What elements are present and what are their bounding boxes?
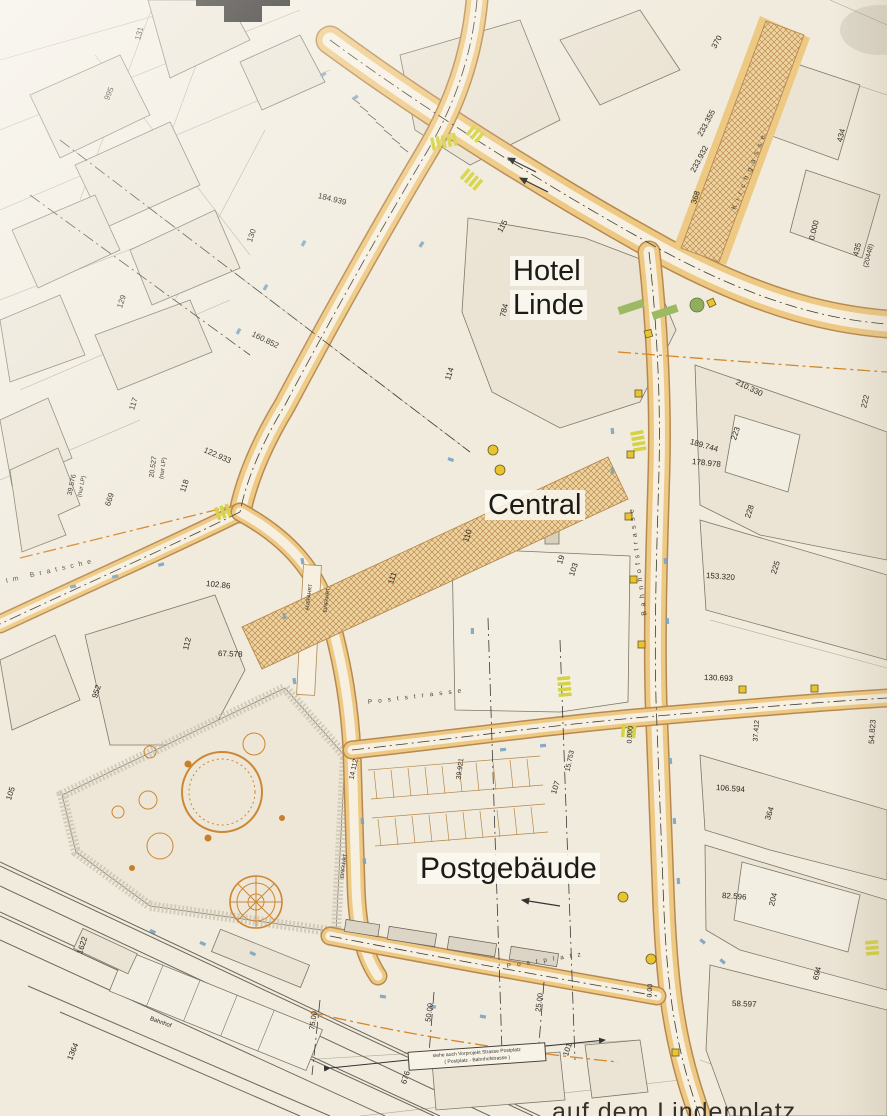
map-label: 0.00 xyxy=(647,984,655,998)
map-label: 0.000 xyxy=(627,726,635,744)
map-label: 37.412 xyxy=(753,720,761,742)
kirchgasse-hatched-strip xyxy=(681,21,804,262)
place-title: Central xyxy=(485,490,585,520)
scanned-site-plan: HotelLindeCentralPostgebäudeIm BratscheB… xyxy=(0,0,887,1116)
scan-smudge xyxy=(840,5,887,55)
cropped-caption: auf dem Lindenplatz xyxy=(552,1098,796,1116)
map-label: 130.693 xyxy=(704,674,733,683)
map-label: 58.597 xyxy=(732,1000,757,1009)
map-label: 54.823 xyxy=(868,719,878,744)
place-title: Hotel xyxy=(510,256,584,286)
place-title: Postgebäude xyxy=(417,853,600,884)
place-title: Linde xyxy=(510,290,587,320)
map-label: 82.596 xyxy=(722,892,747,902)
map-label: 67.578 xyxy=(218,650,243,659)
